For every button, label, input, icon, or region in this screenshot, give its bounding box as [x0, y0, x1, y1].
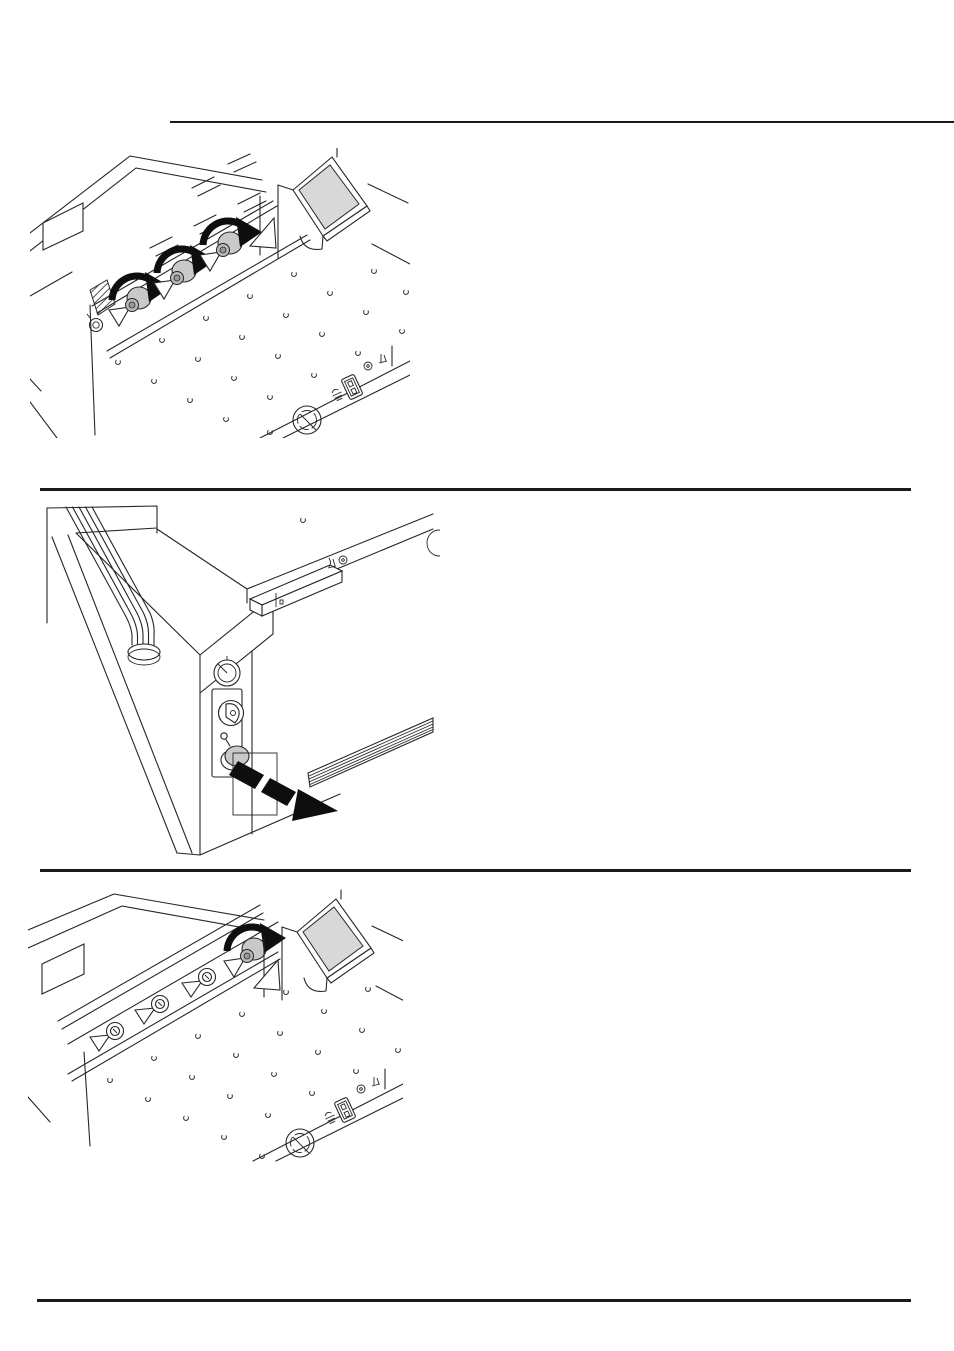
blade-carrier: [308, 718, 433, 787]
table-rail-and-bar: [247, 514, 433, 616]
blade-screw: [90, 1023, 124, 1052]
figure-pull-out-blade-carrier: [40, 503, 440, 863]
manual-page: [0, 0, 954, 1351]
key-switch-icon: [219, 701, 244, 726]
separator-rule-top: [170, 121, 954, 123]
display-screen: [254, 890, 403, 1006]
display-screen: [250, 148, 410, 264]
separator-rule-3: [40, 869, 911, 872]
clamp-knob-1-rotation-arrow-icon: [109, 272, 171, 326]
control-strip: [253, 1069, 403, 1161]
blade-screw: [182, 969, 216, 998]
end-cylinder: [87, 314, 103, 332]
table-button-icon: [339, 556, 347, 564]
release-knob: [221, 733, 249, 770]
control-strip: [260, 346, 410, 438]
figure-turn-end-knob: [28, 884, 403, 1166]
label-plate: [43, 203, 83, 250]
blade-screw: [135, 996, 169, 1025]
separator-rule-2: [40, 488, 911, 491]
separator-rule-bottom: [37, 1299, 911, 1302]
table-hole: [427, 530, 440, 556]
clamp-knob-2-rotation-arrow-icon: [154, 245, 216, 299]
label-plate: [42, 944, 84, 994]
figure-loosen-clamp-knobs: [30, 148, 410, 438]
pressure-gauge-icon: [214, 656, 240, 686]
air-nozzle-hole: [300, 517, 307, 524]
